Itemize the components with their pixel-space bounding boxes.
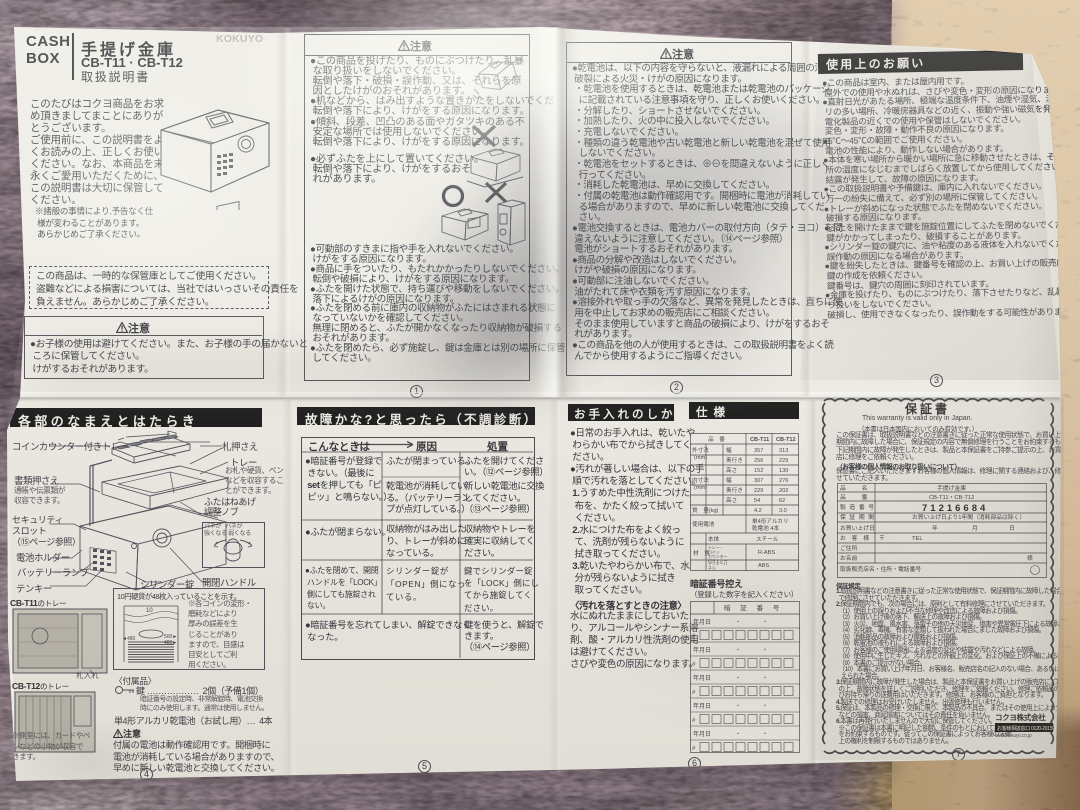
svg-text:お買い上げ日: お買い上げ日	[840, 524, 875, 532]
svg-text:・: ・	[735, 704, 741, 710]
svg-text:256: 256	[754, 458, 763, 464]
svg-text:#: #	[692, 746, 696, 752]
svg-text:130: 130	[779, 468, 788, 474]
svg-text:・: ・	[735, 648, 741, 654]
svg-text:奥行き: 奥行き	[726, 456, 743, 464]
svg-text:お買い上げ日より1年間（消耗部品は除く）: お買い上げ日より1年間（消耗部品は除く）	[912, 513, 1025, 521]
svg-text:品 名: 品 名	[840, 484, 872, 492]
svg-text:手提げ金庫: 手提げ金庫	[937, 484, 966, 492]
svg-text:品 番: 品 番	[840, 494, 872, 501]
svg-text:保 証 期 間: 保 証 期 間	[840, 513, 875, 521]
svg-text:年月日: 年月日	[693, 702, 711, 710]
svg-text:〒: 〒	[879, 535, 885, 542]
svg-text:幅: 幅	[726, 476, 732, 484]
svg-text:日: 日	[1009, 525, 1015, 532]
svg-text:ABS: ABS	[758, 563, 769, 569]
svg-text:・: ・	[735, 676, 741, 682]
svg-text:高さ: 高さ	[726, 496, 737, 504]
svg-text:152: 152	[754, 468, 763, 474]
svg-text:4.2: 4.2	[754, 508, 762, 514]
svg-text:外寸法: 外寸法	[692, 446, 709, 454]
svg-text:製 造 番 号: 製 造 番 号	[840, 503, 875, 511]
svg-text:3.0: 3.0	[779, 508, 787, 514]
svg-text:229: 229	[779, 458, 788, 464]
svg-text:年: 年	[932, 524, 938, 532]
svg-text:307: 307	[754, 478, 763, 484]
svg-text:使用電池: 使用電池	[692, 520, 715, 528]
svg-text:480►: 480►	[164, 640, 177, 646]
svg-text:質 量(kg): 質 量(kg)	[692, 506, 719, 514]
svg-text:・: ・	[762, 648, 768, 654]
svg-text:奥行き: 奥行き	[726, 486, 743, 494]
svg-text:幅: 幅	[726, 446, 732, 454]
svg-text:年月日: 年月日	[693, 646, 711, 654]
svg-text:229: 229	[754, 488, 763, 494]
svg-text:単4形アルカリ: 単4形アルカリ	[752, 517, 788, 525]
svg-text:#: #	[692, 690, 696, 696]
svg-text:本体: 本体	[708, 535, 720, 543]
svg-text:10: 10	[146, 608, 153, 614]
svg-text:CB-T11・CB-T12: CB-T11・CB-T12	[929, 495, 974, 501]
svg-text:・: ・	[762, 732, 768, 738]
svg-text:#: #	[692, 662, 696, 668]
svg-text:品 番: 品 番	[708, 436, 725, 443]
svg-text:54: 54	[754, 498, 760, 504]
svg-text:TEL: TEL	[912, 536, 923, 542]
svg-text:◄480: ◄480	[122, 636, 136, 642]
svg-text:(mm): (mm)	[694, 455, 707, 461]
svg-text:スチール: スチール	[756, 536, 779, 543]
svg-text:年月日: 年月日	[693, 730, 711, 738]
svg-text:ご住所: ご住所	[840, 544, 858, 552]
svg-text:CB-T11: CB-T11	[750, 437, 769, 443]
svg-text:313: 313	[779, 448, 788, 454]
svg-text:62: 62	[779, 498, 785, 504]
svg-text:取扱販売店名・住所・電話番号: 取扱販売店名・住所・電話番号	[840, 565, 921, 573]
svg-text:#: #	[692, 634, 696, 640]
svg-text:202: 202	[779, 488, 788, 494]
svg-text:#: #	[692, 718, 696, 724]
svg-text:様: 様	[1027, 554, 1033, 562]
svg-text:CB-T12: CB-T12	[776, 437, 796, 443]
svg-text:年月日: 年月日	[693, 618, 711, 626]
svg-text:暗 証 番 号: 暗 証 番 号	[724, 603, 783, 612]
svg-text:高さ: 高さ	[726, 466, 737, 474]
svg-text:・: ・	[735, 620, 741, 626]
svg-text:お名前: お名前	[840, 554, 858, 562]
svg-text:71216684: 71216684	[922, 503, 988, 514]
svg-text:(mm): (mm)	[694, 485, 707, 491]
svg-text:内寸法: 内寸法	[692, 476, 709, 484]
svg-text:・: ・	[762, 620, 768, 626]
svg-text:ネル: ネル	[708, 566, 716, 571]
svg-text:・: ・	[762, 676, 768, 682]
svg-text:乾電池 4本: 乾電池 4本	[752, 524, 779, 532]
svg-text:月: 月	[972, 525, 978, 532]
svg-text:276: 276	[779, 478, 788, 484]
svg-text:357: 357	[754, 448, 763, 454]
svg-text:R-ABS: R-ABS	[758, 550, 775, 556]
svg-text:・: ・	[762, 704, 768, 710]
svg-text:お 客 様: お 客 様	[840, 534, 869, 542]
svg-text:年月日: 年月日	[693, 674, 711, 682]
svg-text:・: ・	[735, 732, 741, 738]
